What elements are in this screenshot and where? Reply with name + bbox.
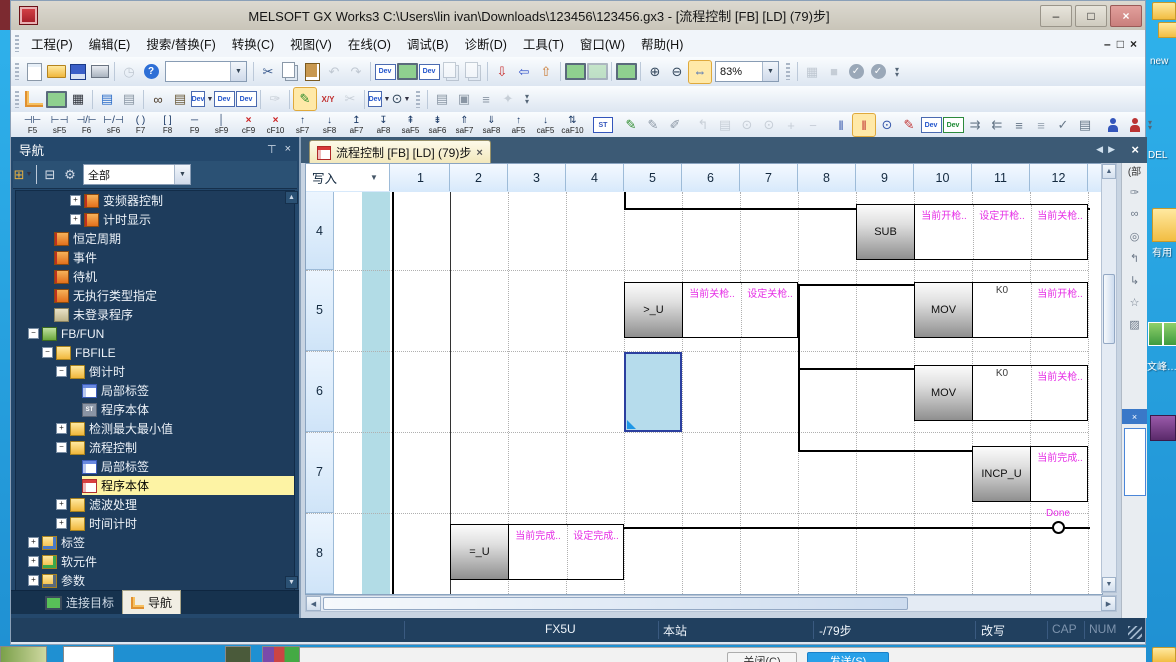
toolbar-separator [611, 62, 612, 81]
tree-item-待机[interactable]: 待机 [16, 267, 294, 286]
tree-item-FB/FUN[interactable]: −FB/FUN [16, 324, 294, 343]
mdi-minimize-icon[interactable]: – [1104, 37, 1111, 51]
menu-O[interactable]: 在线(O) [340, 30, 399, 57]
comment-display-icon[interactable]: ▦ [801, 61, 823, 83]
melsoft-app-icon [19, 6, 38, 25]
photo-thumbnail[interactable] [0, 646, 47, 662]
quick-access-combo[interactable]: ▼ [165, 61, 247, 82]
find-coil-icon[interactable]: ⊙ [758, 114, 780, 136]
desktop-app-icon[interactable] [1148, 322, 1163, 346]
desktop-folder-icon[interactable] [1158, 22, 1176, 38]
caps-lock-indicator: CAP [1052, 622, 1077, 636]
ladder-grid-body[interactable]: 45678 SUB当前开枪..设定开枪..当前关枪..>_U当前关枪..设定关枪… [306, 192, 1102, 594]
ladder-symbol-cF10-button[interactable]: ×cF10 [262, 113, 289, 137]
tree-item-程序本体[interactable]: ST程序本体 [16, 400, 294, 419]
tab-connection-target[interactable]: 连接目标 [37, 591, 122, 614]
ladder-symbol-F8-button[interactable]: [ ]F8 [154, 113, 181, 137]
num-lock-indicator: NUM [1089, 622, 1116, 636]
redo-icon[interactable]: ↷ [345, 61, 367, 83]
insert-row-icon[interactable]: + [780, 114, 802, 136]
document-thumbnail[interactable] [63, 646, 114, 662]
tree-item-标签[interactable]: +标签 [16, 533, 294, 552]
fit-width-icon[interactable]: ⇔ [688, 60, 712, 84]
delete-line-icon[interactable]: ✎ [642, 114, 664, 136]
scroll-down-icon[interactable]: ▼ [1102, 577, 1116, 592]
scroll-left-icon[interactable]: ◀ [306, 596, 321, 611]
module-configuration-icon[interactable] [45, 88, 67, 110]
mode-label: 写入 [312, 168, 337, 187]
jump-icon[interactable]: ↰ [692, 114, 714, 136]
horizontal-scroll-thumb[interactable] [323, 597, 908, 610]
online-change-icon[interactable]: ⇧ [535, 61, 557, 83]
close-nav-icon[interactable]: × [285, 143, 291, 156]
instruction-block-SUB[interactable]: SUB [857, 205, 915, 259]
mode-selector[interactable]: 写入 ▼ [306, 164, 390, 191]
column-header-2[interactable]: 2 [450, 164, 508, 191]
expand-icon[interactable]: + [70, 195, 81, 206]
view-toolbar: ▦▤▤∞▤Dev▼DevDev✑✎X/Y✂Dev▼⊙▼▤▣≡✦▾▾ [11, 86, 1145, 113]
close-button[interactable]: × [1110, 5, 1142, 27]
coil-label[interactable]: Done [1028, 508, 1088, 519]
favorites-star-icon[interactable]: ☆ [1127, 294, 1143, 310]
device-check-icon[interactable]: Dev [920, 114, 942, 136]
device-display-icon[interactable]: Dev▼ [368, 88, 390, 110]
column-header-1[interactable]: 1 [392, 164, 450, 191]
cross-reference-icon[interactable]: ▤ [169, 88, 191, 110]
instruction-region[interactable]: =_U当前完成..设定完成.. [450, 524, 624, 580]
device-skip-icon[interactable]: Dev [942, 114, 964, 136]
menu-E[interactable]: 编辑(E) [81, 30, 139, 57]
desktop-folder-icon[interactable] [1152, 208, 1176, 242]
collapse-icon[interactable]: − [28, 328, 39, 339]
toolbar-overflow-icon[interactable]: ▾▾ [521, 94, 533, 104]
ladder-symbol-saF8-button[interactable]: ⇓saF8 [478, 113, 505, 137]
row-header-4[interactable]: 4 [306, 192, 334, 270]
ladder-symbol-sF8-button[interactable]: ↓sF8 [316, 113, 343, 137]
ladder-editor: 流程控制 [FB] [LD] (79)步 × ◀ ▶ × 写入 ▼ 123456… [301, 137, 1147, 618]
open-project-icon[interactable] [45, 61, 67, 83]
jump-forward-icon[interactable]: ↳ [1127, 272, 1143, 288]
ladder-wire [798, 368, 916, 370]
toolbar-separator [114, 62, 115, 81]
display-lines-icon[interactable]: ≡ [475, 88, 497, 110]
tree-item-局部标签[interactable]: 局部标签 [16, 457, 294, 476]
tree-item-变频器控制[interactable]: +变频器控制 [16, 191, 294, 210]
restore-button[interactable]: □ [1075, 5, 1107, 27]
collapse-icon[interactable]: − [56, 366, 67, 377]
indent-right-icon[interactable]: ⇉ [964, 114, 986, 136]
write-to-plc-icon[interactable]: ⇩ [491, 61, 513, 83]
menu-T[interactable]: 工具(T) [515, 30, 572, 57]
edit-doc-icon[interactable]: ✎ [898, 114, 920, 136]
io-monitor-icon[interactable]: X/Y [317, 88, 339, 110]
pou-list-icon[interactable]: ▣ [453, 88, 475, 110]
ladder-wire [798, 284, 916, 286]
tree-item-局部标签[interactable]: 局部标签 [16, 381, 294, 400]
photo-thumbnail[interactable] [225, 646, 251, 662]
column-header-8[interactable]: 8 [798, 164, 856, 191]
desktop-box-icon[interactable] [1150, 415, 1176, 441]
operand-label[interactable]: K0 [973, 285, 1031, 296]
ladder-symbol-aF5-button[interactable]: ↑aF5 [505, 113, 532, 137]
grid-line [306, 351, 1088, 352]
input-instruction-icon[interactable]: ✐ [664, 114, 686, 136]
toolbar-grip[interactable] [15, 91, 19, 108]
chevron-down-icon[interactable]: ▼ [762, 62, 778, 81]
collapse-tree-icon[interactable]: ⊟ [40, 165, 60, 185]
work-window-list-icon[interactable]: ▤ [96, 88, 118, 110]
toolbar-separator [289, 90, 290, 109]
document-tab-close-icon[interactable]: × [476, 147, 482, 159]
menu-P[interactable]: 工程(P) [23, 30, 81, 57]
ladder-symbol-sF7-button[interactable]: ↑sF7 [289, 113, 316, 137]
ladder-symbol-saF6-button[interactable]: ⇟saF6 [424, 113, 451, 137]
expand-icon[interactable]: + [56, 423, 67, 434]
indent-left-icon[interactable]: ⇇ [986, 114, 1008, 136]
scroll-right-icon[interactable]: ▶ [1101, 596, 1116, 611]
ladder-symbol-F7-button[interactable]: ( )F7 [127, 113, 154, 137]
folder-icon [70, 498, 85, 512]
zoom-in-icon[interactable]: ⊕ [644, 61, 666, 83]
help-icon[interactable]: ? [140, 61, 162, 83]
align-lines2-icon[interactable]: ≡ [1030, 114, 1052, 136]
close-dialog-button[interactable]: 关闭(C) [727, 652, 797, 662]
comment-edit-icon[interactable]: ✑ [264, 88, 286, 110]
paste-icon[interactable] [301, 61, 323, 83]
document-tab[interactable]: 流程控制 [FB] [LD] (79)步 × [309, 140, 491, 164]
project-revision-icon[interactable]: ◷ [118, 61, 140, 83]
stamp-icon[interactable]: ✑ [1127, 184, 1143, 200]
chevron-down-icon[interactable]: ▼ [403, 96, 410, 103]
expand-icon[interactable]: + [56, 499, 67, 510]
option-gear-icon[interactable]: ⚙ [60, 165, 80, 185]
tree-item-label: 标签 [61, 533, 89, 552]
zoom-out-icon[interactable]: ⊖ [666, 61, 688, 83]
ladder-symbol-aF8-button[interactable]: ↧aF8 [370, 113, 397, 137]
send-button[interactable]: 发送(S) [807, 652, 889, 662]
copy-icon[interactable] [279, 61, 301, 83]
mdi-restore-icon[interactable]: □ [1117, 37, 1124, 51]
screen-paste-icon[interactable] [462, 61, 484, 83]
convert-check-icon[interactable]: ✓ [845, 61, 867, 83]
draw-line-icon[interactable]: ✎ [620, 114, 642, 136]
dock-subpanel[interactable] [1124, 428, 1146, 496]
stop-watch-icon[interactable]: ■ [823, 61, 845, 83]
new-project-icon[interactable] [23, 61, 45, 83]
operand-label[interactable]: K0 [973, 368, 1031, 379]
ladder-symbol-saF7-button[interactable]: ⇑saF7 [451, 113, 478, 137]
column-header-11[interactable]: 11 [972, 164, 1030, 191]
pin-icon[interactable]: ⊤ [267, 143, 277, 156]
selected-tree-item[interactable]: 程序本体 [82, 476, 294, 495]
zoom-level-combo-value[interactable]: 83% [716, 66, 762, 78]
menu-B[interactable]: 调试(B) [399, 30, 457, 57]
left-power-rail [392, 192, 394, 594]
mdi-close-icon[interactable]: × [1130, 37, 1137, 51]
close-icon[interactable]: × [1132, 412, 1137, 422]
tree-item-时间计时[interactable]: +时间计时 [16, 514, 294, 533]
statement-list-icon[interactable]: ▤ [431, 88, 453, 110]
device-memory-icon[interactable]: Dev [418, 61, 440, 83]
cut-icon[interactable]: ✂ [257, 61, 279, 83]
device-comment-icon[interactable]: Dev [374, 61, 396, 83]
ladder-symbol-sF6-button[interactable]: ⊢/⊣sF6 [100, 113, 127, 137]
grid-line [682, 192, 683, 594]
connection-icon [45, 596, 62, 610]
row-header-7[interactable]: 7 [306, 432, 334, 513]
instruction-region[interactable]: INCP_U当前完成.. [972, 446, 1088, 502]
tree-item-未登录程序[interactable]: 未登录程序 [16, 305, 294, 324]
tree-item-label: 参数 [61, 571, 89, 590]
output-coil[interactable] [1052, 521, 1065, 534]
menu-V[interactable]: 视图(V) [282, 30, 340, 57]
tree-scrollbar[interactable]: ▲ ▼ [284, 190, 299, 590]
vertical-scroll-thumb[interactable] [1103, 274, 1115, 344]
document-tab-bar: 流程控制 [FB] [LD] (79)步 × ◀ ▶ × [301, 137, 1147, 163]
rail-edit-icon[interactable]: ‖ [852, 113, 876, 137]
pgm-icon [84, 194, 99, 208]
close-document-icon[interactable]: × [1131, 142, 1139, 157]
convert-all-check-icon[interactable]: ✓ [867, 61, 889, 83]
tree-item-计时显示[interactable]: +计时显示 [16, 210, 294, 229]
list-check-icon[interactable]: ✓ [1052, 114, 1074, 136]
device-list-icon[interactable]: Dev [213, 88, 235, 110]
toolbar-grip[interactable] [416, 91, 420, 108]
instruction-block->_U[interactable]: >_U [625, 283, 683, 337]
instruction-block-MOV[interactable]: MOV [915, 283, 973, 337]
user-support-icon[interactable] [1124, 114, 1146, 136]
toolbar-grip[interactable] [786, 63, 790, 80]
ladder-symbol-cF9-button[interactable]: ×cF9 [235, 113, 262, 137]
tree-item-label: 未登录程序 [73, 305, 137, 324]
vertical-scrollbar[interactable]: ▲ ▼ [1101, 163, 1117, 593]
tree-item-label: 计时显示 [103, 210, 155, 229]
user-web-icon[interactable] [1102, 114, 1124, 136]
next-tab-icon[interactable]: ▶ [1108, 144, 1115, 155]
column-header-9[interactable]: 9 [856, 164, 914, 191]
tree-item-流程控制[interactable]: −流程控制 [16, 438, 294, 457]
instruction-block-INCP_U[interactable]: INCP_U [973, 447, 1031, 501]
desktop-app-icon[interactable] [1163, 322, 1176, 346]
foldergrey-icon [54, 308, 69, 322]
tree-item-检测最大最小值[interactable]: +检测最大最小值 [16, 419, 294, 438]
folder-close-icon[interactable]: ▨ [1127, 316, 1143, 332]
scroll-up-icon[interactable]: ▲ [285, 191, 298, 204]
tree-item-软元件[interactable]: +软元件 [16, 552, 294, 571]
monitor-window-icon[interactable] [564, 61, 586, 83]
device-find-icon[interactable]: Dev▼ [191, 88, 213, 110]
monitor-window2-icon[interactable] [586, 61, 608, 83]
ladder-wire [624, 527, 1090, 529]
screen-copy-icon[interactable] [440, 61, 462, 83]
list-ref-icon[interactable]: ▤ [1074, 114, 1096, 136]
find-binoculars-icon[interactable]: ∞ [147, 88, 169, 110]
winrar-icon[interactable] [262, 646, 300, 662]
find-contact-icon[interactable]: ⊙ [736, 114, 758, 136]
tree-item-无执行类型指定[interactable]: 无执行类型指定 [16, 286, 294, 305]
instruction-region[interactable]: MOVK0当前关枪.. [914, 365, 1088, 421]
edit-mode-icon[interactable]: ✎ [293, 87, 317, 111]
row-header-5[interactable]: 5 [306, 270, 334, 351]
column-header-7[interactable]: 7 [740, 164, 798, 191]
resize-grip[interactable] [1128, 626, 1142, 639]
library-icon[interactable]: ✦ [497, 88, 519, 110]
column-header-5[interactable]: 5 [624, 164, 682, 191]
watch-window-icon[interactable] [615, 61, 637, 83]
tree-filter-combo[interactable]: 全部▼ [83, 164, 191, 185]
scroll-up-icon[interactable]: ▲ [1102, 164, 1116, 179]
tree-item-倒计时[interactable]: −倒计时 [16, 362, 294, 381]
instruction-block-=_U[interactable]: =_U [451, 525, 509, 579]
desktop-folder-icon[interactable] [1152, 647, 1176, 662]
menu-D[interactable]: 诊断(D) [457, 30, 515, 57]
save-project-icon[interactable] [67, 61, 89, 83]
column-header-6[interactable]: 6 [682, 164, 740, 191]
st-inline-icon[interactable]: ST [592, 114, 614, 136]
tree-item-label: 倒计时 [89, 362, 129, 381]
operand-label[interactable]: 当前开枪.. [915, 207, 973, 222]
read-from-plc-icon[interactable]: ⇦ [513, 61, 535, 83]
expand-icon[interactable]: + [28, 556, 39, 567]
grid-line [740, 192, 741, 594]
ladder-symbol-sF5-button[interactable]: ⊢⊣sF5 [46, 113, 73, 137]
expand-icon[interactable]: + [28, 575, 39, 586]
desktop-folder-icon[interactable] [1152, 2, 1176, 20]
jump-back-icon[interactable]: ↰ [1127, 250, 1143, 266]
chevron-down-icon[interactable]: ▼ [25, 171, 32, 178]
folder-icon [56, 346, 71, 360]
operand-label[interactable]: 当前完成.. [509, 527, 567, 542]
menu-H[interactable]: 帮助(H) [633, 30, 691, 57]
chevron-down-icon[interactable]: ▼ [174, 165, 190, 184]
column-header-3[interactable]: 3 [508, 164, 566, 191]
find-doc-icon[interactable]: ⊙ [876, 114, 898, 136]
cursor-selected-cell[interactable] [624, 352, 682, 432]
browse-icon[interactable]: ◎ [1127, 228, 1143, 244]
tree-item-程序本体[interactable]: 程序本体 [16, 476, 294, 495]
navigation-icon [131, 597, 144, 609]
ladder-program-icon [317, 146, 331, 160]
zoom-level-combo[interactable]: 83%▼ [715, 61, 779, 82]
collapse-icon[interactable]: − [56, 442, 67, 453]
menu-F[interactable]: 搜索/替换(F) [138, 30, 223, 57]
tab-label: 导航 [148, 594, 172, 611]
operand-label[interactable]: 当前关枪.. [1031, 368, 1089, 383]
ladder-wire [798, 450, 974, 452]
instruction-region[interactable]: SUB当前开枪..设定开枪..当前关枪.. [856, 204, 1088, 260]
folder-icon [70, 517, 85, 531]
grid-line [306, 432, 1088, 433]
ladder-symbol-F5-button[interactable]: ⊣⊢F5 [19, 113, 46, 137]
folderd-icon [42, 555, 57, 569]
operand-label[interactable]: 设定关枪.. [741, 285, 799, 300]
grid-line [306, 270, 1088, 271]
expand-icon[interactable]: + [70, 214, 81, 225]
row-header-8[interactable]: 8 [306, 513, 334, 594]
unit-tool-icon[interactable]: ▦ [67, 88, 89, 110]
print-icon[interactable] [89, 61, 111, 83]
title-bar[interactable]: MELSOFT GX Works3 C:\Users\lin ivan\Down… [11, 1, 1145, 30]
find-device-icon[interactable]: ⊙▼ [390, 88, 412, 110]
toolbar-separator [370, 62, 371, 81]
operand-label[interactable]: 当前完成.. [1031, 449, 1089, 464]
column-header-4[interactable]: 4 [566, 164, 624, 191]
tree-filter-combo-value[interactable]: 全部 [84, 167, 174, 183]
column-header-12[interactable]: 12 [1030, 164, 1088, 191]
align-lines-icon[interactable]: ≡ [1008, 114, 1030, 136]
ladder-symbol-F9-button[interactable]: ─F9 [181, 113, 208, 137]
device-batch-icon[interactable]: Dev [235, 88, 257, 110]
cpu-type: FX5U [545, 622, 576, 636]
tree-item-滤波处理[interactable]: +滤波处理 [16, 495, 294, 514]
tree-item-事件[interactable]: 事件 [16, 248, 294, 267]
expand-icon[interactable]: + [56, 518, 67, 529]
tree-module-icon[interactable]: ⊞▼ [13, 165, 33, 185]
ladder-monitor-icon[interactable] [396, 61, 418, 83]
prev-tab-icon[interactable]: ◀ [1096, 144, 1103, 155]
ladder-symbol-caF5-button[interactable]: ↓caF5 [532, 113, 559, 137]
column-header-10[interactable]: 10 [914, 164, 972, 191]
scroll-down-icon[interactable]: ▼ [285, 576, 298, 589]
expand-icon[interactable]: + [28, 537, 39, 548]
folder-icon [70, 422, 85, 436]
operand-label[interactable]: 当前关枪.. [683, 285, 741, 300]
ladder-symbol-saF5-button[interactable]: ⇞saF5 [397, 113, 424, 137]
desktop-icon-label: 文峰… [1147, 358, 1176, 373]
output-window-icon[interactable]: ▤ [118, 88, 140, 110]
wire-cut-icon[interactable]: ✂ [339, 88, 361, 110]
menu-C[interactable]: 转换(C) [224, 30, 282, 57]
undo-icon[interactable]: ↶ [323, 61, 345, 83]
instruction-region[interactable]: >_U当前关枪..设定关枪.. [624, 282, 798, 338]
instruction-block-MOV[interactable]: MOV [915, 366, 973, 420]
binoculars-icon[interactable]: ∞ [1127, 206, 1143, 222]
menu-W[interactable]: 窗口(W) [572, 30, 633, 57]
ladder-symbol-sF9-button[interactable]: │sF9 [208, 113, 235, 137]
operand-label[interactable]: 当前开枪.. [1031, 285, 1089, 300]
rail-display-icon[interactable]: ‖ [830, 114, 852, 136]
document-icon[interactable]: ▤ [714, 114, 736, 136]
project-tree-icon[interactable] [23, 88, 45, 110]
pgm-icon [54, 270, 69, 284]
tree-item-参数[interactable]: +参数 [16, 571, 294, 590]
tab-navigation[interactable]: 导航 [122, 590, 181, 614]
tree-item-label: 无执行类型指定 [73, 286, 161, 305]
instruction-region[interactable]: MOVK0当前开枪.. [914, 282, 1088, 338]
ladder-symbol-aF7-button[interactable]: ↥aF7 [343, 113, 370, 137]
minimize-button[interactable]: – [1040, 5, 1072, 27]
ladder-symbol-F6-button[interactable]: ⊣/⊢F6 [73, 113, 100, 137]
horizontal-scrollbar[interactable]: ◀ ▶ [305, 595, 1117, 612]
tree-item-label: 事件 [73, 248, 101, 267]
delete-row-icon[interactable]: − [802, 114, 824, 136]
desktop-icon-label: new [1150, 56, 1168, 67]
collapse-icon[interactable]: − [42, 347, 53, 358]
tree-item-恒定周期[interactable]: 恒定周期 [16, 229, 294, 248]
operand-label[interactable]: 设定开枪.. [973, 207, 1031, 222]
toolbar-grip[interactable] [15, 63, 19, 80]
row-header-6[interactable]: 6 [306, 351, 334, 432]
menubar-grip[interactable] [15, 35, 19, 52]
navigation-title: 导航 ⊤ × [11, 137, 299, 161]
toolbar-overflow-icon[interactable]: ▾▾ [1148, 120, 1152, 130]
chevron-down-icon[interactable]: ▼ [230, 62, 246, 81]
ladder-symbol-caF10-button[interactable]: ⇅caF10 [559, 113, 586, 137]
operand-label[interactable]: 设定完成.. [567, 527, 625, 542]
tree-item-FBFILE[interactable]: −FBFILE [16, 343, 294, 362]
operand-label[interactable]: 当前关枪.. [1031, 207, 1089, 222]
toolbar-overflow-icon[interactable]: ▾▾ [891, 67, 903, 77]
